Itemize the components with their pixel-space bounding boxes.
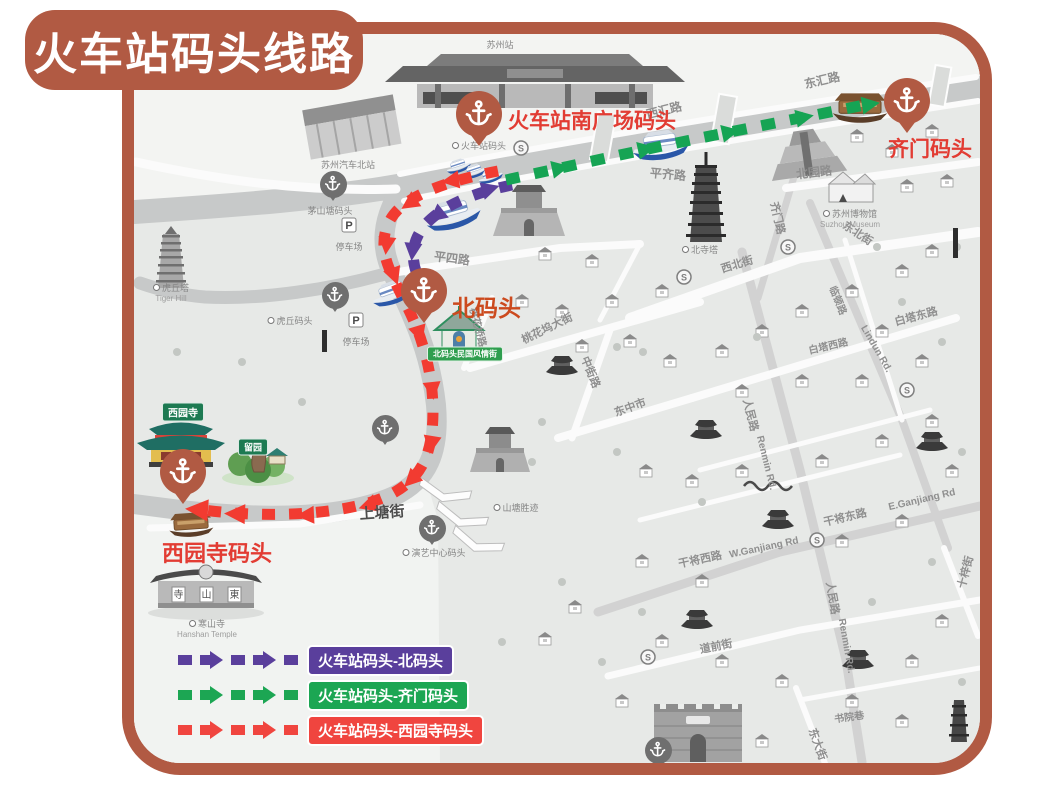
minor-dock-pin — [322, 282, 349, 309]
poi-text: 虎丘码头 — [276, 316, 312, 326]
dock-label-qimen: 齐门码头 — [888, 133, 972, 163]
legend-arrow-head — [210, 651, 223, 669]
anchor-icon — [168, 457, 197, 486]
legend-arrow-tail — [200, 655, 210, 665]
title-badge: 火车站码头线路 — [25, 10, 363, 90]
poi-label: 演艺中心码头 — [402, 548, 465, 559]
legend-arrow-tail — [253, 655, 263, 665]
legend: 火车站码头-北码头火车站码头-齐门码头火车站码头-西园寺码头 — [178, 646, 484, 744]
legend-arrow-head — [210, 686, 223, 704]
legend-arrow-icon — [253, 651, 276, 669]
poi-text: 停车场 — [342, 337, 369, 347]
poi-label: 苏州站 — [486, 40, 513, 51]
poi-text: 茅山塘码头 — [307, 206, 352, 216]
landmark-plate: 北码头民国风情街 — [427, 347, 503, 362]
landmark-plate: 留园 — [238, 439, 268, 456]
poi-dot-icon — [189, 620, 196, 627]
legend-arrow-icon — [200, 721, 223, 739]
anchor-icon — [409, 276, 438, 305]
poi-dot-icon — [452, 142, 459, 149]
legend-arrow-tail — [253, 725, 263, 735]
dock-pin-station-south — [456, 91, 502, 137]
poi-text: 苏州站 — [486, 40, 513, 50]
street-label: 平齐路 — [649, 164, 686, 184]
poi-dot-icon — [267, 317, 274, 324]
street-label: 上塘街 — [359, 500, 405, 524]
poi-label: 寒山寺Hanshan Temple — [177, 619, 237, 639]
legend-row-qimen: 火车站码头-齐门码头 — [178, 681, 484, 709]
legend-badge-north: 火车站码头-北码头 — [307, 645, 454, 676]
poi-label: 停车场 — [342, 337, 369, 348]
legend-arrow-tail — [200, 725, 210, 735]
legend-route-sample — [178, 686, 298, 704]
poi-label: 苏州博物馆Suzhou Museum — [820, 209, 880, 229]
poi-text: 虎丘塔 — [162, 283, 189, 293]
poi-dot-icon — [682, 246, 689, 253]
dock-pin-xiyuan — [160, 449, 206, 495]
legend-arrow-head — [210, 721, 223, 739]
anchor-icon — [892, 86, 921, 115]
poi-text: 停车场 — [335, 242, 362, 252]
legend-route-sample — [178, 721, 298, 739]
poi-label: 虎丘码头 — [267, 316, 312, 327]
poi-text: 北寺塔 — [691, 245, 718, 255]
map: 寺 山 東 — [122, 22, 992, 775]
anchor-icon — [376, 419, 393, 436]
legend-arrow-tail — [253, 690, 263, 700]
poi-text: 苏州汽车北站 — [321, 160, 375, 170]
legend-arrow-head — [263, 686, 276, 704]
dock-label-north: 北码头 — [452, 289, 521, 323]
poi-label: 山塘胜迹 — [493, 503, 538, 514]
dock-pin-qimen — [884, 78, 930, 124]
poi-dot-icon — [402, 549, 409, 556]
poi-label: 茅山塘码头 — [307, 206, 352, 217]
anchor-icon — [464, 99, 493, 128]
poi-label: 停车场 — [335, 242, 362, 253]
legend-arrow-icon — [200, 686, 223, 704]
legend-arrow-icon — [200, 651, 223, 669]
page-title: 火车站码头线路 — [33, 18, 355, 82]
legend-dash — [178, 655, 192, 665]
legend-dash — [284, 655, 298, 665]
legend-badge-qimen: 火车站码头-齐门码头 — [307, 680, 469, 711]
poi-text-en: Suzhou Museum — [820, 220, 880, 230]
legend-row-xiyuan: 火车站码头-西园寺码头 — [178, 716, 484, 744]
legend-dash — [178, 690, 192, 700]
poi-text: 寒山寺 — [198, 619, 225, 629]
minor-dock-pin — [320, 171, 347, 198]
legend-dash — [231, 690, 245, 700]
anchor-icon — [324, 175, 341, 192]
dock-label-xiyuan: 西园寺码头 — [162, 536, 272, 568]
legend-arrow-tail — [200, 690, 210, 700]
legend-badge-xiyuan: 火车站码头-西园寺码头 — [307, 715, 484, 746]
anchor-icon — [326, 286, 343, 303]
landmark-plate: 西园寺 — [162, 403, 204, 422]
legend-arrow-head — [263, 721, 276, 739]
minor-dock-pin — [645, 737, 672, 764]
poi-dot-icon — [153, 284, 160, 291]
poi-text: 山塘胜迹 — [502, 503, 538, 513]
poi-dot-icon — [493, 504, 500, 511]
legend-arrow-icon — [253, 721, 276, 739]
poi-label: 苏州汽车北站 — [321, 160, 375, 171]
dock-pin-north — [401, 268, 447, 314]
anchor-icon — [649, 741, 666, 758]
legend-row-north: 火车站码头-北码头 — [178, 646, 484, 674]
legend-arrow-head — [263, 651, 276, 669]
poi-label: 虎丘塔Tiger Hill — [153, 283, 189, 303]
poi-text-en: Hanshan Temple — [177, 630, 237, 640]
anchor-icon — [423, 519, 440, 536]
legend-arrow-icon — [253, 686, 276, 704]
legend-route-sample — [178, 651, 298, 669]
poi-label: 北寺塔 — [682, 245, 718, 256]
poi-dot-icon — [823, 210, 830, 217]
legend-dash — [284, 725, 298, 735]
minor-dock-pin — [372, 415, 399, 442]
minor-dock-pin — [419, 515, 446, 542]
legend-dash — [178, 725, 192, 735]
legend-dash — [231, 725, 245, 735]
dock-label-station-south: 火车站南广场码头 — [508, 105, 676, 135]
poi-text-en: Tiger Hill — [153, 294, 189, 304]
poi-text: 演艺中心码头 — [411, 548, 465, 558]
legend-dash — [231, 655, 245, 665]
poi-text: 苏州博物馆 — [832, 209, 877, 219]
legend-dash — [284, 690, 298, 700]
